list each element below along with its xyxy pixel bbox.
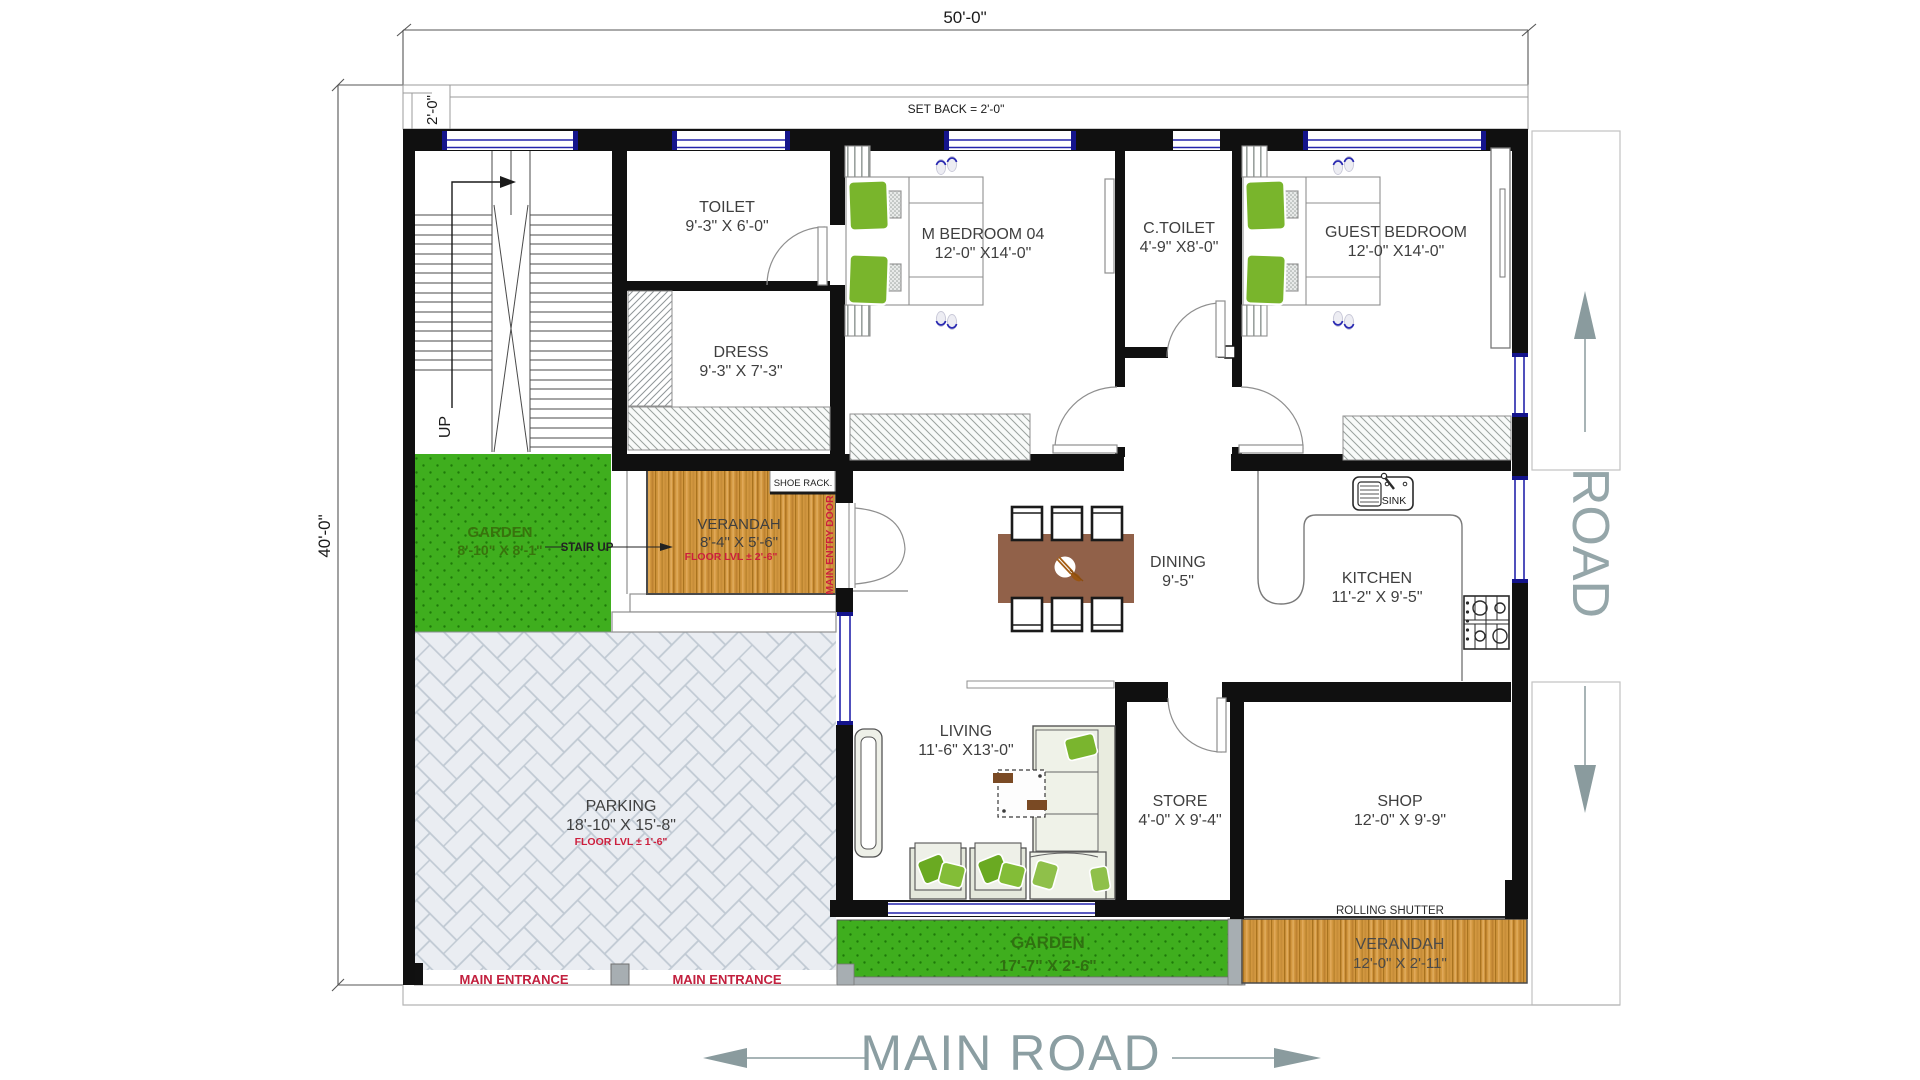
svg-text:UP: UP (437, 416, 454, 438)
svg-text:17'-7" X 2'-6": 17'-7" X 2'-6" (999, 958, 1097, 975)
svg-text:DINING: DINING (1150, 554, 1206, 571)
svg-text:MAIN ENTRANCE: MAIN ENTRANCE (459, 972, 568, 987)
svg-text:9'-3" X 6'-0": 9'-3" X 6'-0" (685, 218, 768, 235)
svg-text:12'-0" X14'-0": 12'-0" X14'-0" (935, 245, 1032, 262)
svg-text:DRESS: DRESS (713, 344, 768, 361)
svg-text:FLOOR LVL ± 1'-6": FLOOR LVL ± 1'-6" (575, 836, 668, 848)
svg-text:LIVING: LIVING (940, 723, 992, 740)
svg-text:GARDEN: GARDEN (1011, 933, 1085, 952)
svg-text:8'-10" X 8'-1": 8'-10" X 8'-1" (457, 542, 542, 558)
svg-text:FLOOR LVL ± 2'-6": FLOOR LVL ± 2'-6" (685, 551, 778, 563)
svg-text:KITCHEN: KITCHEN (1342, 570, 1412, 587)
svg-text:12'-0" X 2'-11": 12'-0" X 2'-11" (1353, 955, 1447, 972)
svg-text:9'-3" X 7'-3": 9'-3" X 7'-3" (699, 363, 782, 380)
svg-text:MAIN ENTRANCE: MAIN ENTRANCE (672, 972, 781, 987)
svg-text:SHOP: SHOP (1377, 793, 1422, 810)
svg-text:VERANDAH: VERANDAH (697, 516, 780, 533)
svg-text:8'-4" X 5'-6": 8'-4" X 5'-6" (700, 534, 778, 551)
svg-text:11'-6" X13'-0": 11'-6" X13'-0" (918, 742, 1013, 759)
svg-text:GARDEN: GARDEN (467, 524, 532, 541)
svg-text:ROLLING SHUTTER: ROLLING SHUTTER (1336, 905, 1444, 917)
svg-text:12'-0" X14'-0": 12'-0" X14'-0" (1348, 243, 1445, 260)
svg-text:4'-9" X8'-0": 4'-9" X8'-0" (1140, 239, 1219, 256)
svg-text:ROAD: ROAD (1561, 468, 1619, 618)
svg-text:GUEST BEDROOM: GUEST BEDROOM (1325, 224, 1467, 241)
svg-text:VERANDAH: VERANDAH (1356, 936, 1445, 953)
svg-text:12'-0" X 9'-9": 12'-0" X 9'-9" (1354, 812, 1446, 829)
svg-text:2'-0": 2'-0" (424, 95, 441, 125)
svg-text:STORE: STORE (1153, 793, 1208, 810)
svg-text:11'-2" X 9'-5": 11'-2" X 9'-5" (1332, 589, 1423, 606)
svg-text:PARKING: PARKING (586, 798, 657, 815)
svg-text:18'-10" X 15'-8": 18'-10" X 15'-8" (566, 817, 676, 834)
svg-text:M BEDROOM 04: M BEDROOM 04 (922, 226, 1045, 243)
svg-text:SINK: SINK (1382, 495, 1407, 507)
svg-text:STAIR UP: STAIR UP (561, 542, 614, 554)
svg-text:SHOE RACK.: SHOE RACK. (774, 478, 833, 489)
svg-text:4'-0" X 9'-4": 4'-0" X 9'-4" (1138, 812, 1221, 829)
svg-text:40'-0": 40'-0" (315, 514, 334, 557)
svg-text:MAIN ROAD: MAIN ROAD (860, 1025, 1161, 1080)
svg-text:C.TOILET: C.TOILET (1143, 220, 1215, 237)
svg-text:9'-5": 9'-5" (1162, 573, 1194, 590)
svg-text:TOILET: TOILET (699, 199, 755, 216)
svg-text:SET BACK = 2'-0": SET BACK = 2'-0" (908, 102, 1005, 116)
svg-text:MAIN ENTRY DOOR: MAIN ENTRY DOOR (824, 495, 836, 595)
svg-text:50'-0": 50'-0" (943, 8, 986, 27)
